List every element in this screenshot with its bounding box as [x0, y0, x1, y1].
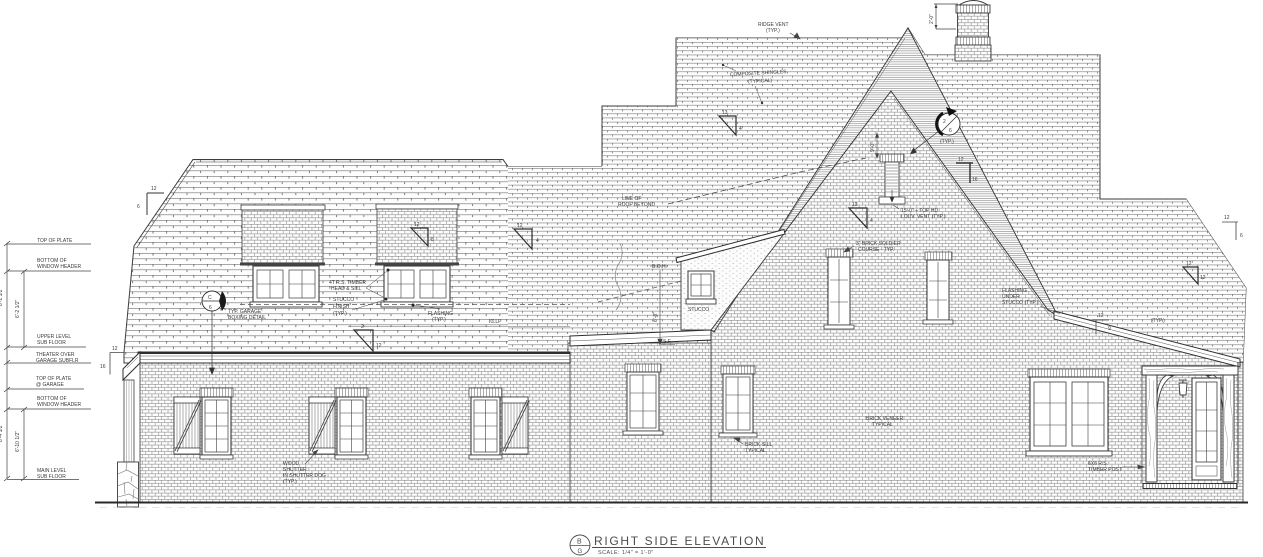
- svg-text:LOUV. VENT (TYP.): LOUV. VENT (TYP.): [901, 214, 946, 220]
- svg-text:(TYP.): (TYP.): [432, 317, 446, 323]
- svg-text:6'-10 1/2": 6'-10 1/2": [15, 431, 21, 452]
- svg-text:STUCCO: STUCCO: [333, 297, 354, 303]
- svg-text:TYPICAL: TYPICAL: [745, 448, 766, 454]
- svg-text:2: 2: [361, 324, 364, 330]
- svg-text:TIMBER POST: TIMBER POST: [1088, 467, 1122, 473]
- svg-text:6'-8": 6'-8": [653, 312, 659, 322]
- svg-text:16: 16: [972, 177, 978, 183]
- svg-text:12: 12: [112, 346, 118, 352]
- svg-text:SCALE: 1/4" = 1'-0": SCALE: 1/4" = 1'-0": [598, 550, 654, 556]
- svg-text:16: 16: [100, 364, 106, 370]
- svg-text:HEAD & SILL: HEAD & SILL: [331, 286, 362, 292]
- svg-text:4: 4: [536, 238, 539, 244]
- svg-text:12: 12: [1200, 275, 1206, 281]
- svg-text:12: 12: [958, 157, 964, 163]
- svg-text:(TYP.): (TYP.): [940, 139, 954, 145]
- svg-text:BOXING DETAIL: BOXING DETAIL: [228, 315, 266, 321]
- svg-text:(TYP.): (TYP.): [333, 311, 347, 317]
- svg-text:6: 6: [949, 128, 952, 134]
- svg-text:TOP OF PLATE: TOP OF PLATE: [37, 238, 73, 244]
- svg-text:TYPICAL: TYPICAL: [872, 422, 893, 428]
- svg-text:12: 12: [1224, 215, 1230, 221]
- svg-text:STUCCO (TYP.): STUCCO (TYP.): [1002, 300, 1039, 306]
- svg-text:2'-0": 2'-0": [929, 14, 935, 24]
- svg-text:4: 4: [870, 218, 873, 224]
- svg-text:COURSE - TYP.: COURSE - TYP.: [858, 247, 894, 253]
- svg-text:@ GARAGE: @ GARAGE: [36, 382, 65, 388]
- svg-text:9: 9: [1108, 326, 1111, 332]
- svg-text:12: 12: [376, 343, 382, 349]
- svg-text:ROOF BEYOND: ROOF BEYOND: [618, 202, 655, 208]
- svg-text:(TYPICAL): (TYPICAL): [748, 78, 773, 85]
- svg-text:RIGHT SIDE ELEVATION: RIGHT SIDE ELEVATION: [594, 534, 765, 548]
- svg-text:B.O.H.: B.O.H.: [652, 264, 667, 270]
- svg-text:FINISH: FINISH: [333, 304, 350, 310]
- svg-text:12: 12: [517, 223, 523, 229]
- svg-text:13: 13: [722, 110, 728, 116]
- svg-text:WINDOW HEADER: WINDOW HEADER: [37, 264, 82, 270]
- svg-text:6: 6: [137, 204, 140, 210]
- svg-text:9'-0": 9'-0": [870, 142, 876, 152]
- svg-text:12: 12: [1098, 313, 1104, 319]
- svg-text:SUB FLOOR: SUB FLOOR: [37, 474, 66, 480]
- svg-text:G: G: [578, 549, 583, 555]
- svg-text:WINDOW HEADER: WINDOW HEADER: [37, 402, 82, 408]
- svg-text:6'-2 1/2": 6'-2 1/2": [15, 299, 21, 318]
- svg-text:SUB FLOOR: SUB FLOOR: [37, 340, 66, 346]
- svg-text:STUCCO: STUCCO: [688, 307, 709, 313]
- svg-text:8: 8: [431, 237, 434, 243]
- svg-text:8'-4 1/2": 8'-4 1/2": [0, 423, 4, 442]
- svg-text:(TYP.): (TYP.): [766, 28, 780, 34]
- svg-text:12: 12: [414, 222, 420, 228]
- svg-text:6: 6: [209, 305, 212, 311]
- svg-text:B: B: [577, 539, 582, 546]
- svg-text:S.F.: S.F.: [663, 339, 672, 345]
- svg-text:8'-1 1/2": 8'-1 1/2": [0, 287, 4, 306]
- svg-text:6: 6: [1240, 233, 1243, 239]
- svg-text:13: 13: [852, 202, 858, 208]
- svg-text:12: 12: [151, 186, 157, 192]
- svg-text:IC.LP: IC.LP: [489, 319, 502, 325]
- svg-text:2: 2: [943, 119, 946, 125]
- svg-text:4: 4: [739, 126, 742, 132]
- svg-text:C: C: [208, 295, 212, 301]
- svg-text:12: 12: [1186, 261, 1192, 267]
- svg-text:(TYP.): (TYP.): [283, 479, 297, 485]
- svg-text:(TYP.): (TYP.): [1151, 318, 1165, 324]
